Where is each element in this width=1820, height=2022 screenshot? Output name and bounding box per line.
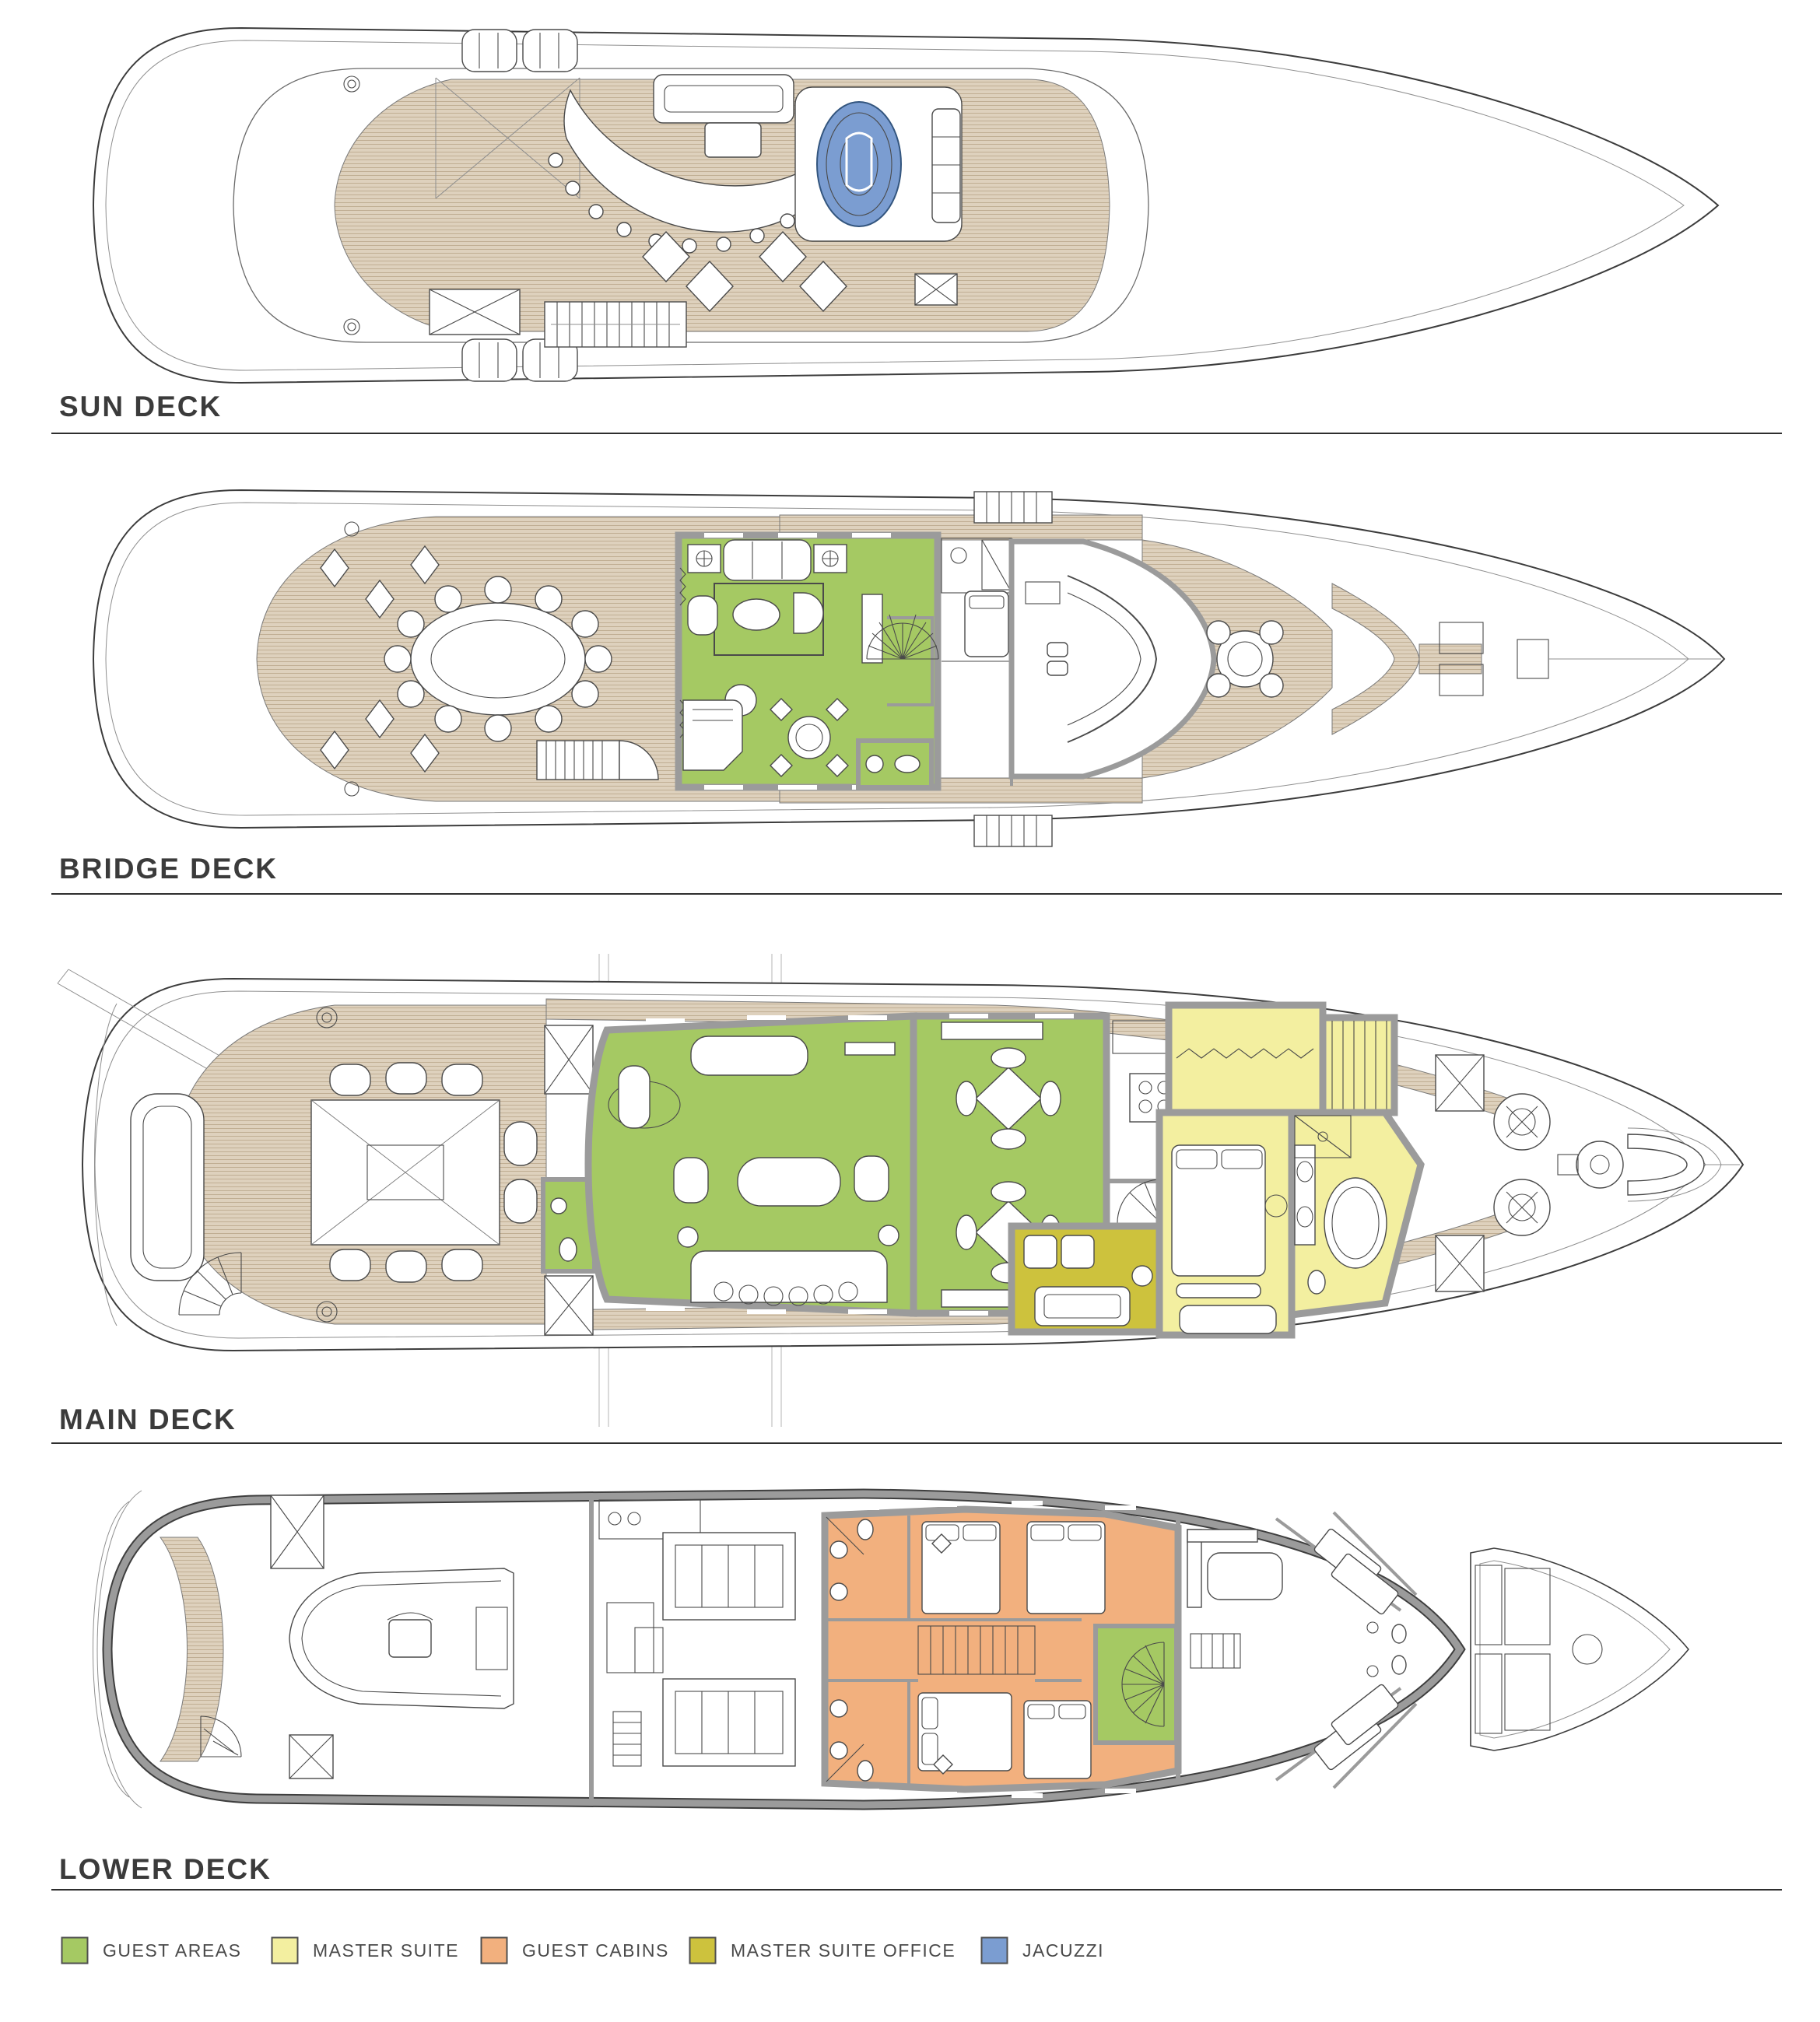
- bathtub: [1324, 1178, 1387, 1268]
- aft-stairs: [537, 741, 658, 780]
- toilet: [895, 755, 920, 773]
- engine: [663, 1533, 795, 1620]
- sky-lounge: [679, 535, 938, 787]
- deck-label-sun-deck: SUN DECK: [59, 391, 222, 423]
- aft-sofa: [131, 1094, 204, 1281]
- bridge-deck-plan: [0, 467, 1820, 871]
- bed-bench: [1177, 1284, 1261, 1298]
- toilet: [1392, 1656, 1406, 1674]
- armchair: [688, 596, 717, 635]
- section-divider: [51, 433, 1782, 434]
- helm-seat: [1047, 661, 1068, 675]
- toilet: [1392, 1624, 1406, 1643]
- coffee-table: [738, 1158, 840, 1206]
- legend-item-jacuzzi: JACUZZI: [980, 1936, 1104, 1964]
- sun-deck-plan: [0, 0, 1820, 443]
- forepeak: [1471, 1548, 1688, 1750]
- chaise: [683, 700, 742, 770]
- engine: [663, 1679, 795, 1766]
- sideboard: [942, 1022, 1043, 1039]
- wardrobe: [1169, 1005, 1323, 1113]
- toilet: [1308, 1270, 1325, 1294]
- sideboard: [845, 1043, 895, 1055]
- legend-swatch-guest-areas: [61, 1936, 89, 1964]
- legend-label: MASTER SUITE: [313, 1940, 459, 1961]
- legend-label: GUEST AREAS: [103, 1940, 241, 1961]
- main-deck-plan: [0, 949, 1820, 1432]
- helm-seat: [1047, 643, 1068, 657]
- legend-swatch-master-suite-office: [689, 1936, 717, 1964]
- office-chair: [1061, 1235, 1094, 1268]
- crew-table: [1208, 1553, 1282, 1600]
- legend-item-guest-areas: GUEST AREAS: [61, 1936, 241, 1964]
- section-divider: [51, 1442, 1782, 1444]
- coffee-table: [733, 599, 780, 630]
- legend-label: JACUZZI: [1022, 1940, 1104, 1961]
- legend-label: MASTER SUITE OFFICE: [731, 1940, 956, 1961]
- section-divider: [51, 893, 1782, 895]
- legend-swatch-guest-cabins: [480, 1936, 508, 1964]
- sink: [866, 755, 883, 773]
- stool: [1132, 1266, 1152, 1286]
- yacht-deck-plans: SUN DECK: [0, 0, 1820, 2022]
- stairs: [545, 302, 686, 347]
- legend-item-master-suite: MASTER SUITE: [271, 1936, 459, 1964]
- sofa: [691, 1036, 808, 1075]
- lower-deck-plan: [0, 1478, 1820, 1852]
- vanity: [1295, 1145, 1315, 1245]
- guest-cabins: [825, 1503, 1178, 1796]
- jacuzzi-bench: [932, 109, 960, 223]
- master-bed: [1172, 1145, 1265, 1276]
- legend-item-master-suite-office: MASTER SUITE OFFICE: [689, 1936, 956, 1964]
- legend-label: GUEST CABINS: [522, 1940, 669, 1961]
- deck-label-lower-deck: LOWER DECK: [59, 1853, 272, 1886]
- game-table: [788, 717, 830, 759]
- captain-bed: [965, 591, 1008, 657]
- desk: [1035, 1287, 1130, 1326]
- master-suite-office: [1012, 1226, 1159, 1332]
- sofa: [724, 540, 811, 580]
- deck-label-main-deck: MAIN DECK: [59, 1403, 237, 1436]
- legend-item-guest-cabins: GUEST CABINS: [480, 1936, 669, 1964]
- foredeck-seating: [1207, 621, 1283, 697]
- top-settee: [654, 75, 794, 123]
- jacuzzi: [795, 87, 962, 241]
- armchair: [854, 1156, 889, 1201]
- capstan: [1576, 1141, 1623, 1188]
- office-chair: [1024, 1235, 1057, 1268]
- sink: [551, 1198, 566, 1214]
- stair-lobby: [1096, 1626, 1177, 1743]
- master-suite: [1159, 1005, 1421, 1335]
- armchair: [619, 1066, 650, 1128]
- bow-walkway: [1419, 644, 1482, 674]
- armchair: [674, 1158, 708, 1203]
- legend-swatch-master-suite: [271, 1936, 299, 1964]
- toilet: [559, 1238, 577, 1261]
- section-divider: [51, 1889, 1782, 1891]
- suite-stairs: [1323, 1018, 1394, 1113]
- deck-label-bridge-deck: BRIDGE DECK: [59, 853, 278, 885]
- suite-sofa: [1180, 1305, 1276, 1333]
- legend-swatch-jacuzzi: [980, 1936, 1008, 1964]
- bench: [862, 594, 882, 663]
